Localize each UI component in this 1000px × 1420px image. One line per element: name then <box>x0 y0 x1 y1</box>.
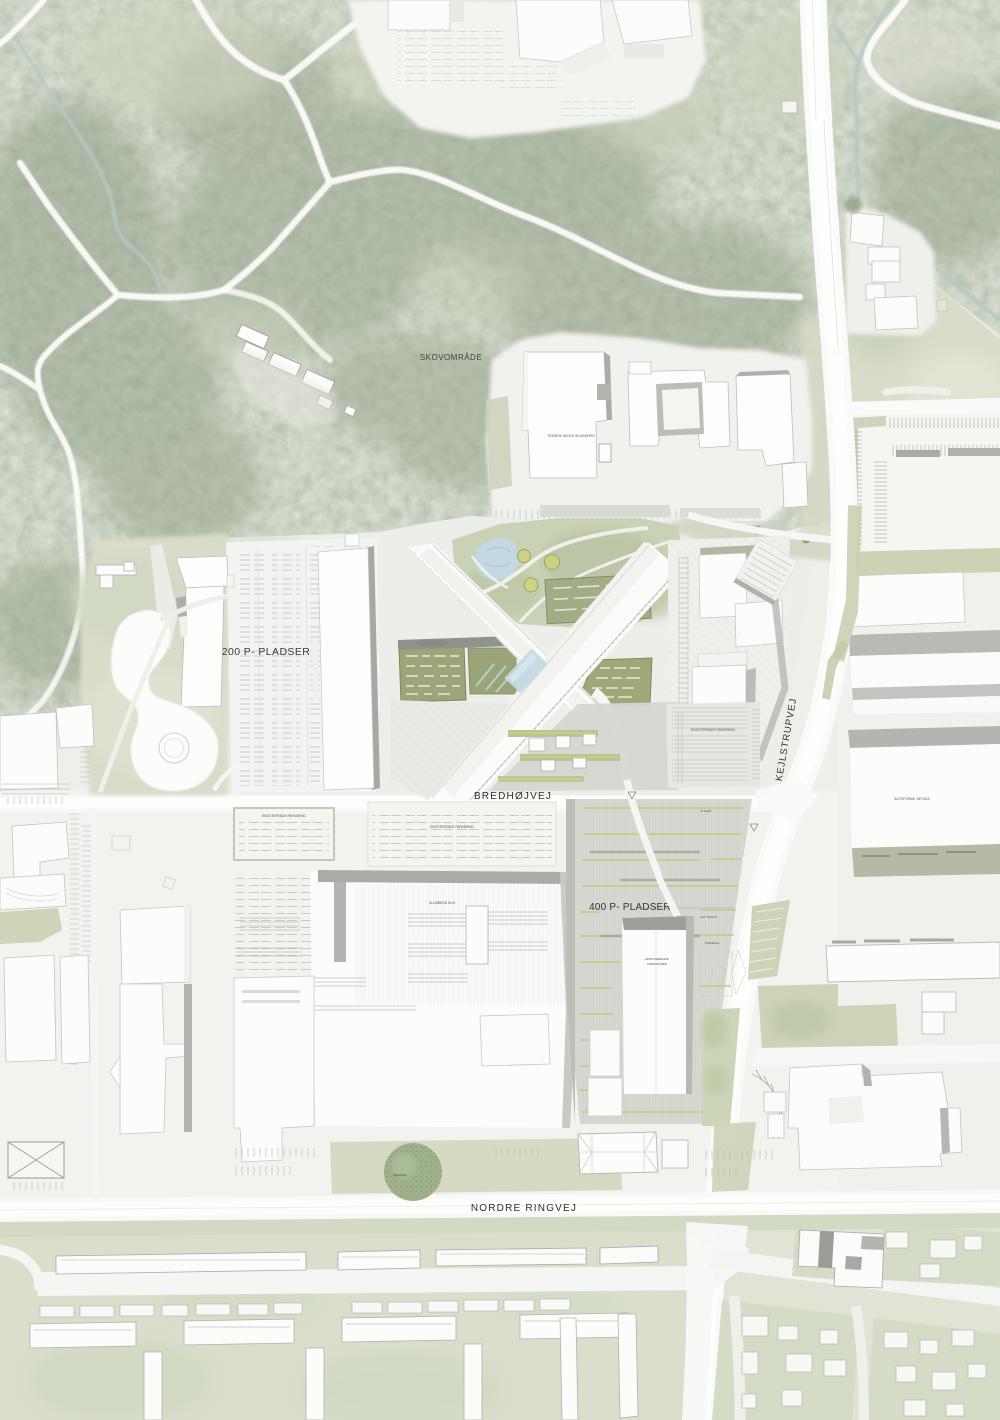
svg-text:VIRKSOMHED: VIRKSOMHED <box>647 962 668 966</box>
svg-text:TORVEHAL: TORVEHAL <box>705 941 720 945</box>
svg-text:400 P- PLADSER: 400 P- PLADSER <box>589 902 671 913</box>
svg-text:BREDHØJVEJ: BREDHØJVEJ <box>474 791 552 802</box>
svg-text:KLUBBENS HUS: KLUBBENS HUS <box>429 901 456 905</box>
svg-text:EKSISTERENDE PARKERING: EKSISTERENDE PARKERING <box>691 728 736 732</box>
svg-text:NORDRE RINGVEJ: NORDRE RINGVEJ <box>471 1203 577 1214</box>
svg-text:SKOVOMRÅDE: SKOVOMRÅDE <box>420 353 482 362</box>
svg-text:200 P- PLADSER: 200 P- PLADSER <box>222 646 310 658</box>
svg-text:LET TRAFIK: LET TRAFIK <box>700 915 717 919</box>
svg-text:TEKNISK SKOLE SILKEBORG: TEKNISK SKOLE SILKEBORG <box>547 434 595 438</box>
svg-text:CYKLER: CYKLER <box>700 809 711 813</box>
svg-text:EKSISTERENDE: EKSISTERENDE <box>645 957 668 961</box>
svg-text:EKSISTERENDE PARKERING: EKSISTERENDE PARKERING <box>262 814 307 818</box>
svg-text:AUTOFORUM DETAILS: AUTOFORUM DETAILS <box>894 797 929 801</box>
svg-text:EKSISTERENDE PARKERING: EKSISTERENDE PARKERING <box>430 825 475 829</box>
svg-text:GRAVHØJ: GRAVHØJ <box>393 1173 407 1177</box>
